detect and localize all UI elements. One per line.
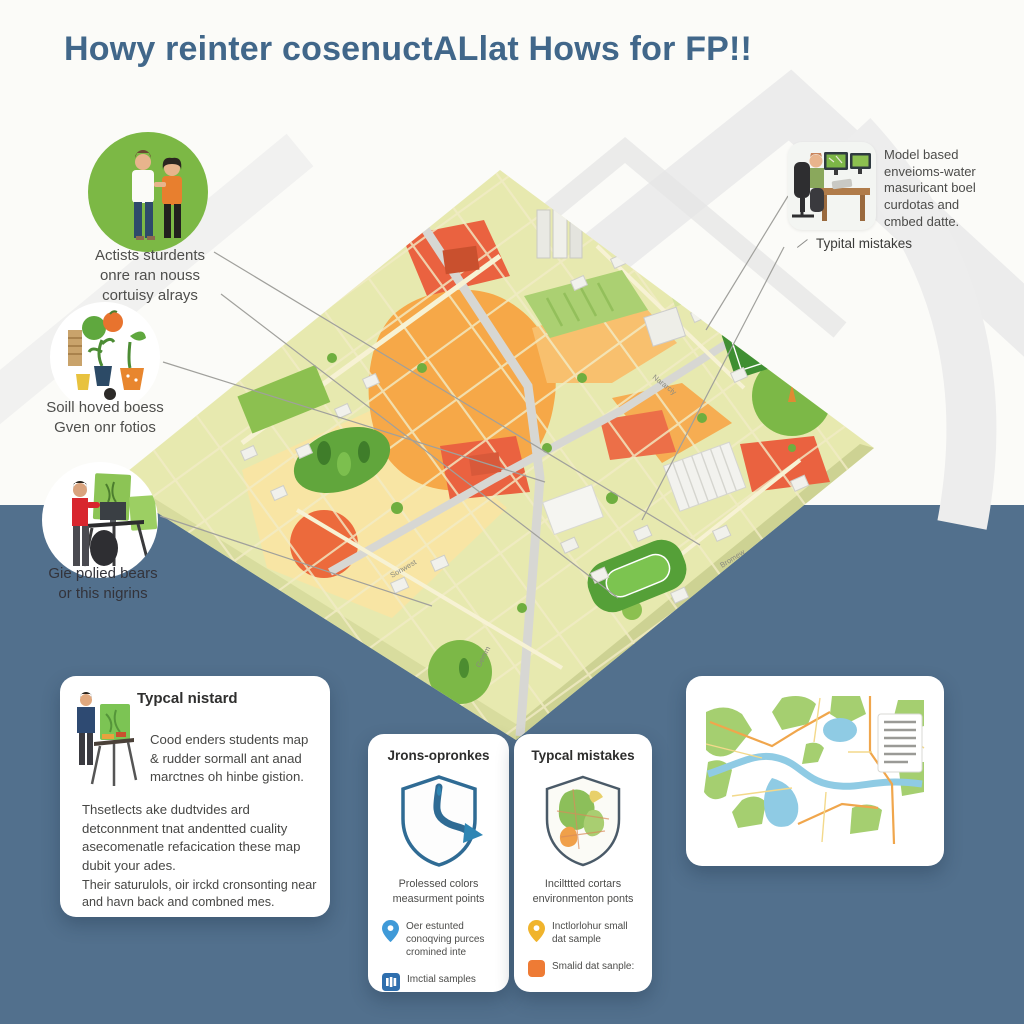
approaches-card-title: Jrons-opronkes [368, 748, 509, 763]
workstation-illustration [788, 142, 876, 230]
shield-map-icon [537, 771, 629, 871]
typical-mistakes-label: Typital mistakes [796, 236, 912, 251]
person-at-monitors-icon [788, 142, 876, 230]
zone-red-3 [740, 436, 830, 492]
isometric-city-map: Sonwest Gemm Nararciy Bromew [92, 148, 892, 763]
mistakes-item-1: Inctlorlohur small dat sample [528, 920, 642, 946]
approaches-card: Jrons-opronkes Prolessed colors measurme… [368, 734, 509, 992]
map-lake-north [823, 718, 857, 742]
presenter-at-easel-icon [66, 688, 138, 808]
map-legend [878, 714, 922, 772]
two-people-icon [88, 132, 208, 252]
analyst-illustration [42, 462, 158, 578]
note-card-paragraph-3: Their saturulols, oir irckd cronsonting … [82, 877, 318, 912]
note-card: Typcal nistard Cood enders students map … [60, 676, 330, 917]
plants-illustration [50, 302, 160, 412]
tick-line [797, 239, 808, 248]
potted-plants-icon [50, 302, 160, 412]
note-card-paragraph-2: Thsetlects ake dudtvides ard detconnment… [82, 801, 318, 875]
students-illustration [88, 132, 208, 252]
page-title: Howy reinter cosenuctALlat Hows for FP!! [64, 30, 752, 69]
mistakes-card-subtitle: Incilttted cortars environmenton ponts [522, 877, 644, 906]
analyst-caption: Gie polied bears or this nigrins [18, 564, 188, 604]
yellow-pin-icon [528, 920, 545, 943]
infographic: Howy reinter cosenuctALlat Hows for FP!! [0, 0, 1024, 1024]
flat-map-illustration [702, 692, 928, 850]
blue-pin-icon [382, 920, 399, 943]
person-at-desk-icon [42, 462, 158, 578]
orange-park-circle [290, 510, 358, 578]
orange-square-icon [528, 960, 545, 977]
mistakes-card: Typcal mistakes Incilttted cortars envir… [514, 734, 652, 992]
students-caption: Actists sturdents onre ran nouss cortuis… [60, 246, 240, 306]
approaches-item-2: Imctial samples [382, 973, 499, 991]
flat-map-card [686, 676, 944, 866]
mistakes-item-2: Smalid dat sanple: [528, 960, 642, 977]
shield-arrow-icon [393, 771, 485, 871]
blue-samples-icon [382, 973, 400, 991]
note-card-paragraph-1: Cood enders students map & rudder sormal… [150, 731, 318, 786]
red-zone-building [442, 246, 479, 274]
approaches-card-subtitle: Prolessed colors measurment points [376, 877, 501, 906]
workstation-text: Model based enveioms-water masuricant bo… [884, 147, 1016, 230]
approaches-item-1: Oer estunted conoqving purces cromined i… [382, 920, 499, 959]
plants-caption: Soill hoved boess Gven onr fotios [20, 398, 190, 438]
note-card-title: Typcal nistard [137, 690, 238, 707]
mistakes-card-title: Typcal mistakes [514, 748, 652, 763]
sports-field [722, 312, 808, 379]
